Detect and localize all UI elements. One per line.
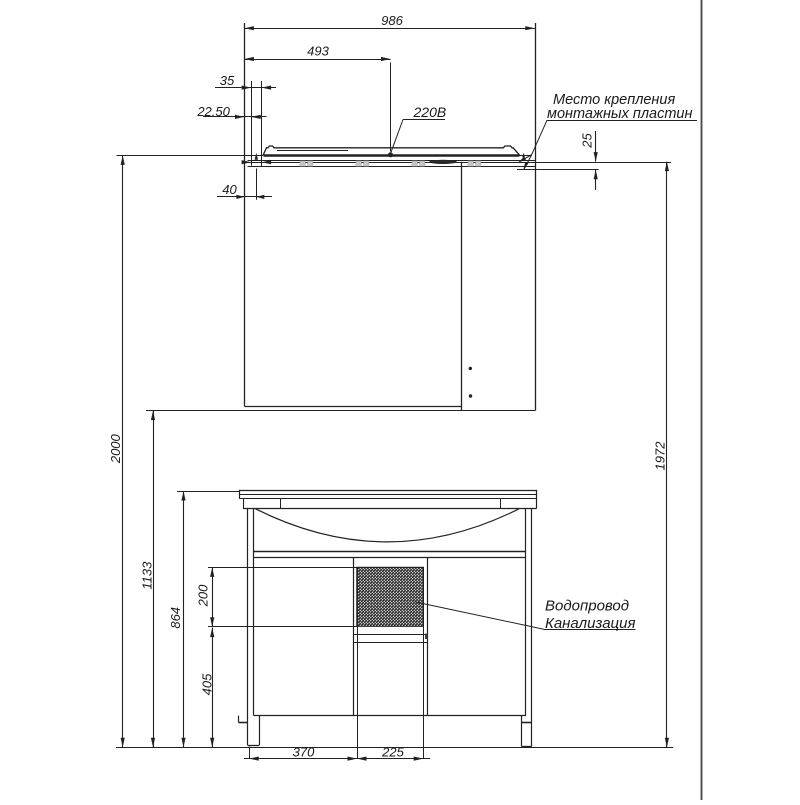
svg-text:220В: 220В (413, 104, 447, 120)
svg-text:22.50: 22.50 (196, 104, 230, 119)
svg-text:1972: 1972 (653, 441, 668, 471)
svg-text:25: 25 (580, 133, 595, 149)
svg-text:405: 405 (200, 673, 215, 695)
svg-text:864: 864 (168, 607, 183, 629)
svg-text:370: 370 (293, 744, 315, 759)
svg-text:монтажных пластин: монтажных пластин (547, 106, 692, 122)
svg-text:1133: 1133 (140, 561, 155, 590)
svg-text:35: 35 (220, 73, 235, 88)
svg-text:493: 493 (307, 43, 329, 58)
svg-text:200: 200 (196, 584, 211, 607)
svg-text:Водопровод: Водопровод (545, 598, 629, 615)
svg-text:2000: 2000 (108, 433, 123, 464)
svg-text:225: 225 (381, 744, 404, 759)
svg-text:40: 40 (222, 182, 237, 197)
svg-text:986: 986 (381, 13, 403, 28)
